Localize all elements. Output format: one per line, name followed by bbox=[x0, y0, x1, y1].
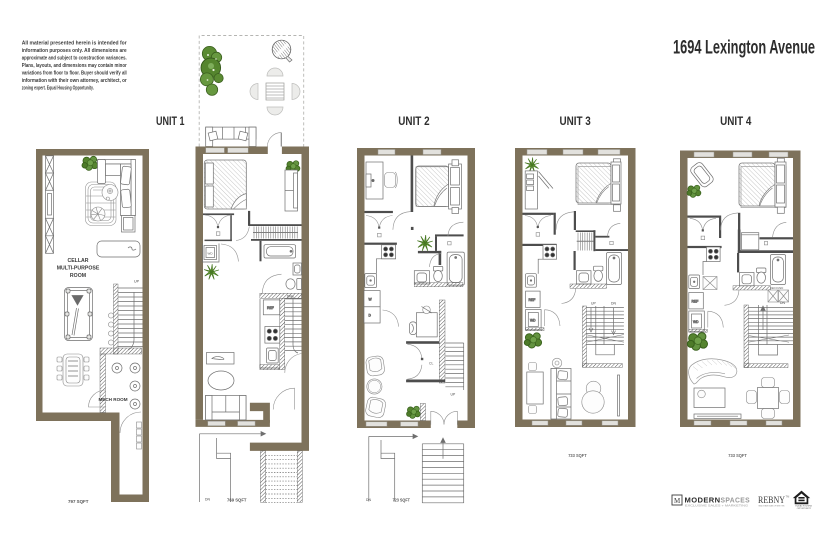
svg-text:DN: DN bbox=[366, 498, 371, 502]
svg-text:WD: WD bbox=[693, 320, 699, 324]
svg-text:DN: DN bbox=[780, 301, 785, 305]
svg-text:CL: CL bbox=[429, 362, 433, 366]
svg-text:ROOM: ROOM bbox=[70, 273, 86, 279]
svg-text:MECH ROOM: MECH ROOM bbox=[98, 397, 127, 402]
svg-text:733 SQFT: 733 SQFT bbox=[728, 453, 747, 459]
svg-text:approximate and subject to con: approximate and subject to construction … bbox=[22, 56, 127, 62]
svg-text:OPPORTUNITY: OPPORTUNITY bbox=[797, 508, 812, 510]
svg-text:Plans, layouts, and dimensions: Plans, layouts, and dimensions may conta… bbox=[22, 63, 128, 69]
svg-text:REF: REF bbox=[529, 298, 536, 302]
svg-text:All material presented herein: All material presented herein is intende… bbox=[22, 41, 128, 47]
svg-text:UP: UP bbox=[591, 302, 596, 306]
svg-text:769 SQFT: 769 SQFT bbox=[227, 497, 247, 503]
svg-text:733 SQFT: 733 SQFT bbox=[568, 453, 587, 459]
svg-text:M: M bbox=[674, 497, 681, 505]
svg-text:TM: TM bbox=[786, 495, 790, 499]
svg-text:MULTI-PURPOSE: MULTI-PURPOSE bbox=[57, 266, 100, 272]
svg-text:REF/OVEN: REF/OVEN bbox=[770, 286, 783, 290]
svg-text:UNIT 4: UNIT 4 bbox=[720, 114, 752, 128]
svg-text:REF: REF bbox=[692, 300, 699, 304]
svg-text:UNIT 2: UNIT 2 bbox=[398, 114, 430, 128]
svg-text:REF: REF bbox=[267, 306, 274, 310]
svg-text:UP: UP bbox=[134, 280, 140, 284]
svg-text:1694 Lexington Avenue: 1694 Lexington Avenue bbox=[673, 36, 815, 58]
svg-text:UP: UP bbox=[451, 393, 456, 397]
svg-text:information with their own att: information with their own attorney, arc… bbox=[22, 78, 128, 84]
svg-text:DN: DN bbox=[205, 498, 210, 502]
svg-text:723 SQFT: 723 SQFT bbox=[393, 497, 411, 503]
svg-text:UNIT 1: UNIT 1 bbox=[156, 114, 185, 128]
svg-text:WD: WD bbox=[530, 319, 536, 323]
svg-text:MODERN: MODERN bbox=[685, 496, 721, 505]
svg-text:WD: WD bbox=[208, 252, 214, 256]
svg-text:variations from floor to floor: variations from floor to floor. Buyer sh… bbox=[22, 71, 127, 77]
svg-text:797 SQFT: 797 SQFT bbox=[68, 499, 89, 505]
svg-text:UNIT 3: UNIT 3 bbox=[560, 114, 592, 128]
svg-text:information purposes only. All: information purposes only. All dimension… bbox=[22, 48, 128, 54]
svg-text:EXCLUSIVE SALES + MARKETING: EXCLUSIVE SALES + MARKETING bbox=[685, 505, 748, 508]
svg-text:CELLAR: CELLAR bbox=[67, 258, 88, 264]
svg-text:zoning expert. Equal Housing O: zoning expert. Equal Housing Opportunity… bbox=[22, 86, 94, 92]
svg-text:SPACES: SPACES bbox=[721, 496, 751, 505]
svg-text:REAL ESTATE BOARD OF NEW YORK: REAL ESTATE BOARD OF NEW YORK bbox=[759, 504, 785, 507]
svg-text:DN: DN bbox=[611, 302, 616, 306]
svg-text:DN: DN bbox=[287, 295, 292, 299]
